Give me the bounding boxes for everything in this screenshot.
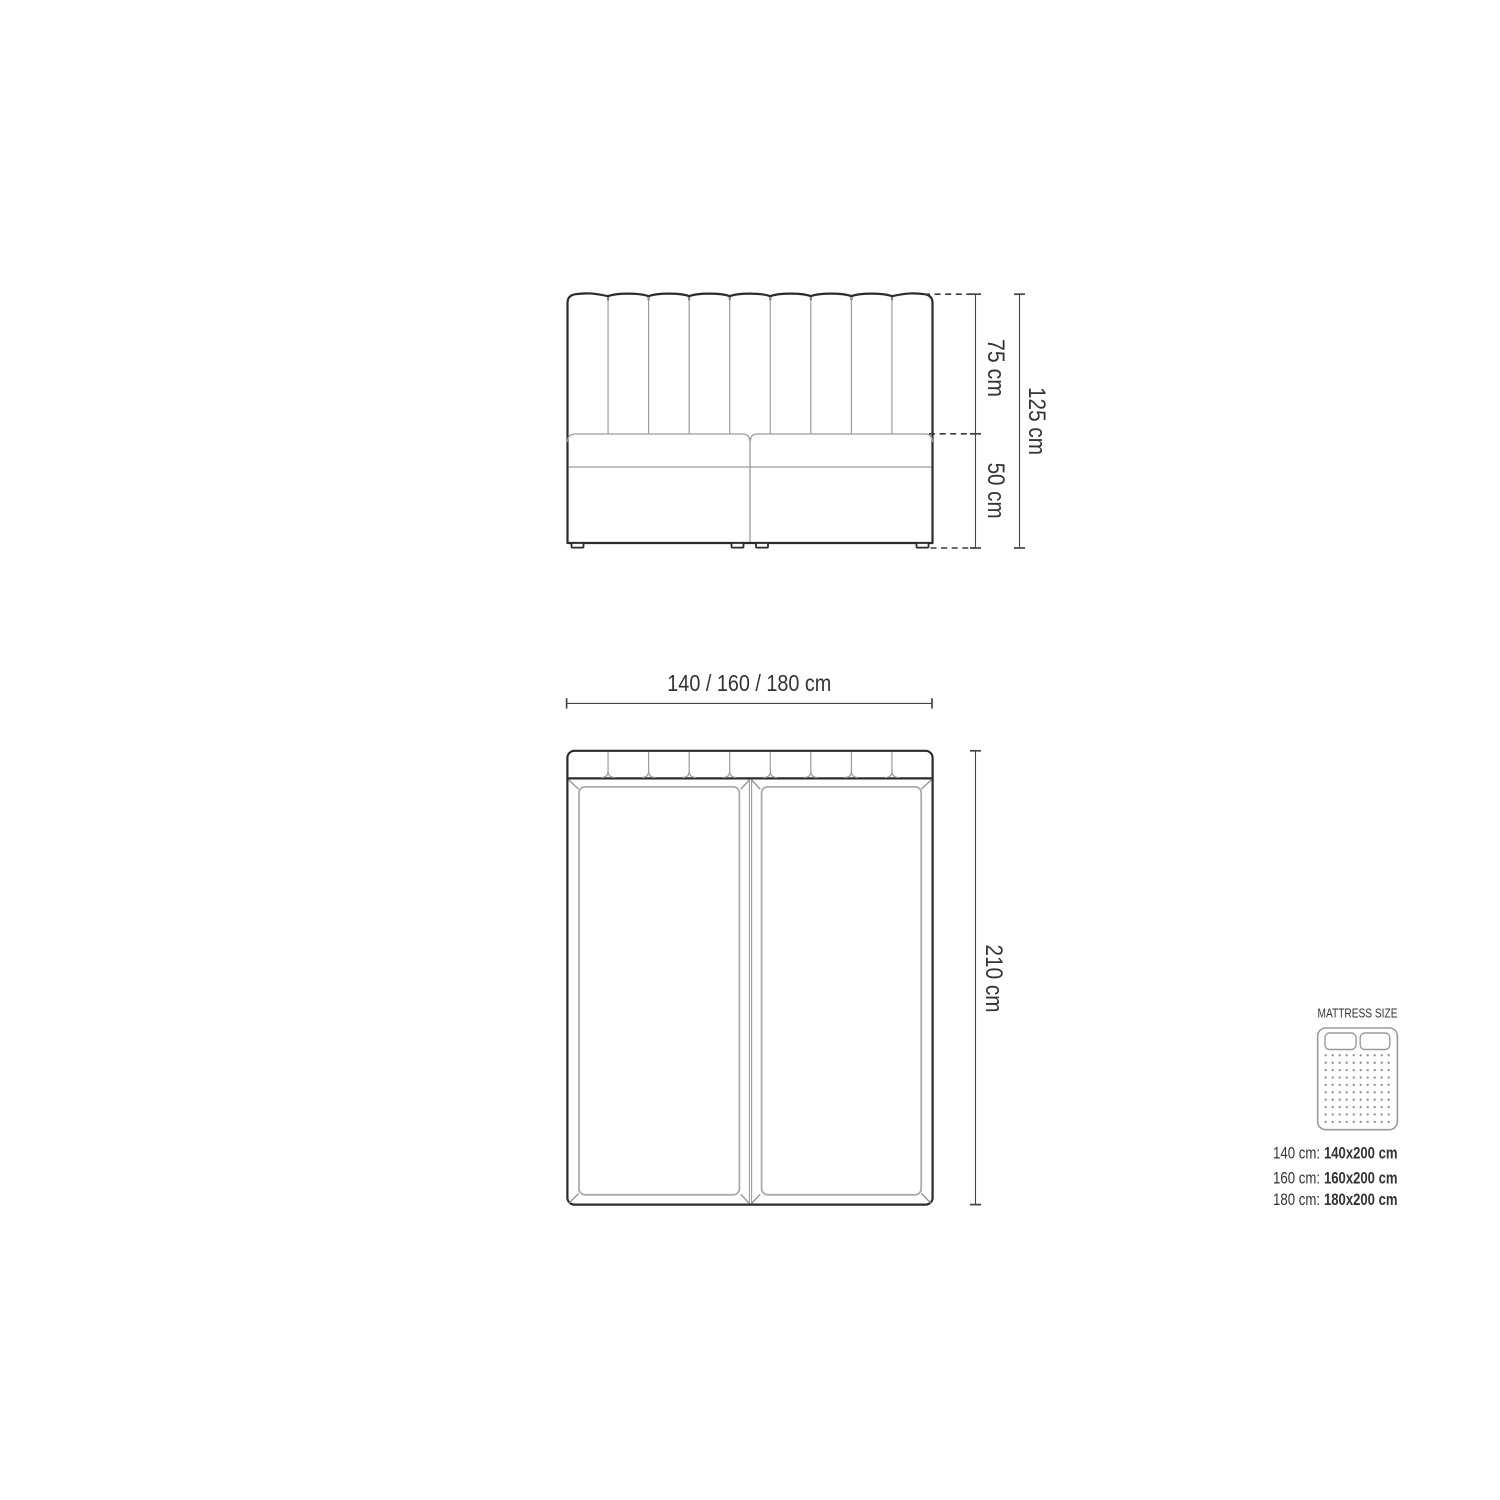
svg-text:140 / 160 / 180 cm: 140 / 160 / 180 cm xyxy=(667,670,831,696)
svg-text:140 cm:: 140 cm: xyxy=(1273,1144,1320,1162)
svg-text:75 cm: 75 cm xyxy=(982,339,1009,397)
svg-text:MATTRESS SIZE: MATTRESS SIZE xyxy=(1318,1006,1398,1021)
svg-text:140x200 cm: 140x200 cm xyxy=(1324,1144,1398,1162)
svg-text:180x200 cm: 180x200 cm xyxy=(1324,1191,1398,1209)
svg-text:160 cm:: 160 cm: xyxy=(1273,1169,1320,1187)
svg-text:160x200 cm: 160x200 cm xyxy=(1324,1169,1398,1187)
svg-text:180 cm:: 180 cm: xyxy=(1273,1191,1320,1209)
svg-text:125 cm: 125 cm xyxy=(1023,387,1050,455)
svg-text:50 cm: 50 cm xyxy=(982,463,1009,519)
svg-text:210 cm: 210 cm xyxy=(980,945,1007,1013)
